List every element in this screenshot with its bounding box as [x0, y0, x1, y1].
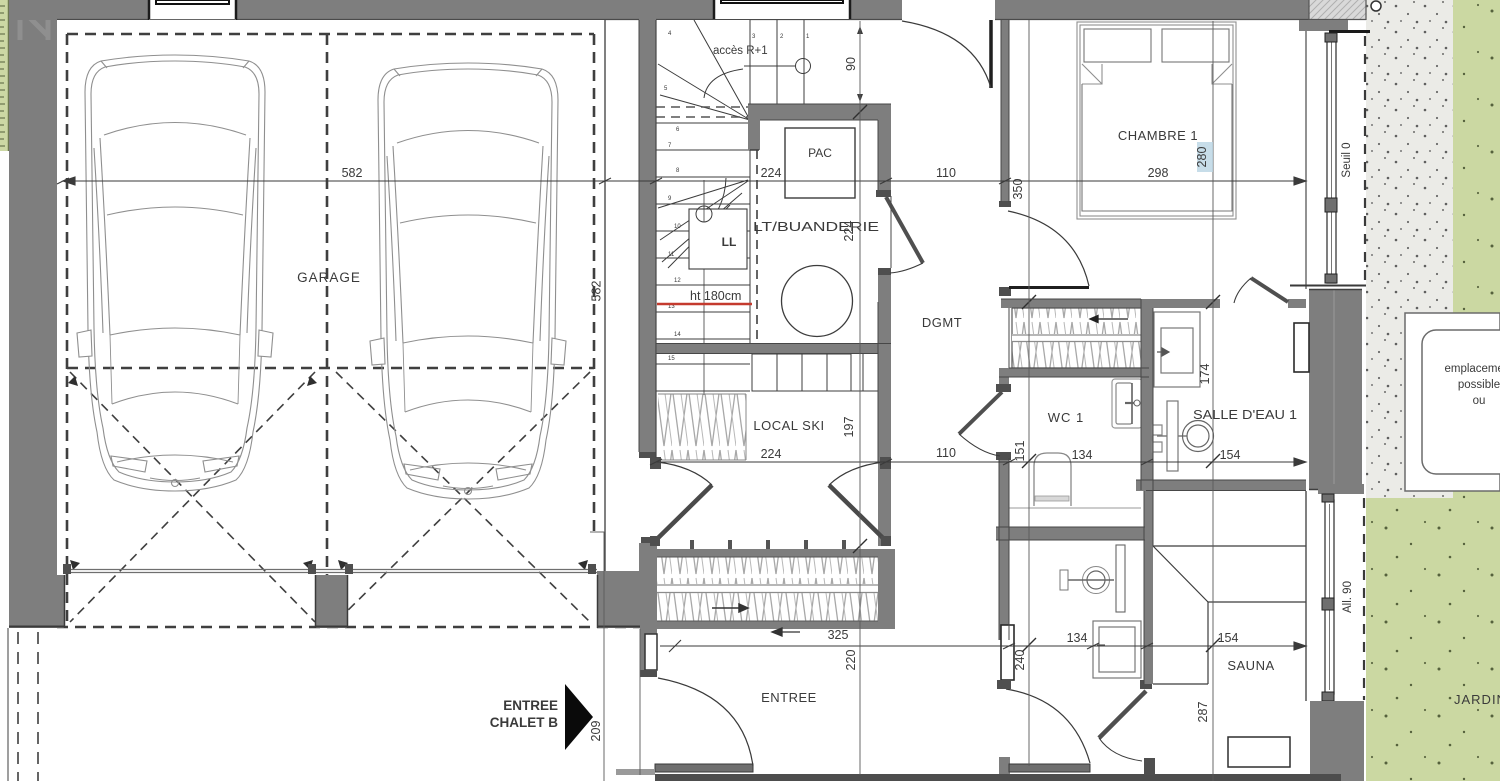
svg-text:ou: ou — [1473, 395, 1486, 407]
svg-text:PAC: PAC — [808, 146, 832, 160]
svg-text:ENTREE: ENTREE — [503, 698, 558, 713]
svg-text:151: 151 — [1013, 441, 1027, 462]
svg-text:240: 240 — [1013, 650, 1027, 671]
svg-text:220: 220 — [844, 650, 858, 671]
svg-text:15: 15 — [668, 356, 675, 362]
svg-text:All. 90: All. 90 — [1342, 581, 1354, 613]
svg-text:582: 582 — [342, 166, 363, 180]
svg-text:287: 287 — [1196, 702, 1210, 723]
svg-text:CHAMBRE 1: CHAMBRE 1 — [1118, 128, 1198, 143]
svg-text:DGMT: DGMT — [922, 315, 962, 330]
svg-text:11: 11 — [668, 252, 675, 258]
svg-text:154: 154 — [1220, 448, 1241, 462]
svg-text:14: 14 — [674, 332, 681, 338]
svg-text:134: 134 — [1067, 631, 1088, 645]
svg-text:110: 110 — [936, 166, 956, 180]
svg-text:ENTREE: ENTREE — [761, 690, 817, 705]
svg-text:SAUNA: SAUNA — [1227, 658, 1274, 673]
svg-text:Seuil 0: Seuil 0 — [1341, 142, 1353, 177]
svg-text:12: 12 — [674, 278, 681, 284]
svg-text:280: 280 — [1195, 147, 1209, 168]
svg-text:10: 10 — [674, 224, 681, 230]
svg-text:WC 1: WC 1 — [1048, 410, 1085, 425]
svg-text:SALLE D'EAU 1: SALLE D'EAU 1 — [1193, 407, 1297, 422]
svg-text:325: 325 — [828, 628, 849, 642]
svg-text:110: 110 — [936, 446, 956, 460]
svg-text:174: 174 — [1198, 364, 1212, 385]
svg-text:350: 350 — [1011, 179, 1025, 200]
svg-text:154: 154 — [1218, 631, 1239, 645]
svg-text:LOCAL SKI: LOCAL SKI — [753, 418, 824, 433]
svg-text:582: 582 — [590, 281, 604, 302]
svg-text:ht 180cm: ht 180cm — [690, 289, 741, 303]
svg-text:224: 224 — [842, 221, 856, 242]
svg-text:197: 197 — [842, 417, 856, 438]
svg-text:LL: LL — [722, 235, 737, 249]
svg-text:90: 90 — [844, 57, 858, 71]
svg-text:298: 298 — [1148, 166, 1169, 180]
svg-text:JARDIN: JARDIN — [1454, 692, 1500, 707]
svg-text:emplacement: emplacement — [1444, 363, 1500, 375]
svg-text:possible: possible — [1458, 379, 1500, 391]
svg-text:134: 134 — [1072, 448, 1093, 462]
svg-text:224: 224 — [761, 166, 782, 180]
svg-text:accès R+1: accès R+1 — [713, 45, 768, 57]
svg-text:209: 209 — [589, 721, 603, 742]
svg-text:GARAGE: GARAGE — [297, 270, 361, 285]
svg-text:224: 224 — [761, 447, 782, 461]
svg-text:CHALET B: CHALET B — [490, 715, 558, 730]
